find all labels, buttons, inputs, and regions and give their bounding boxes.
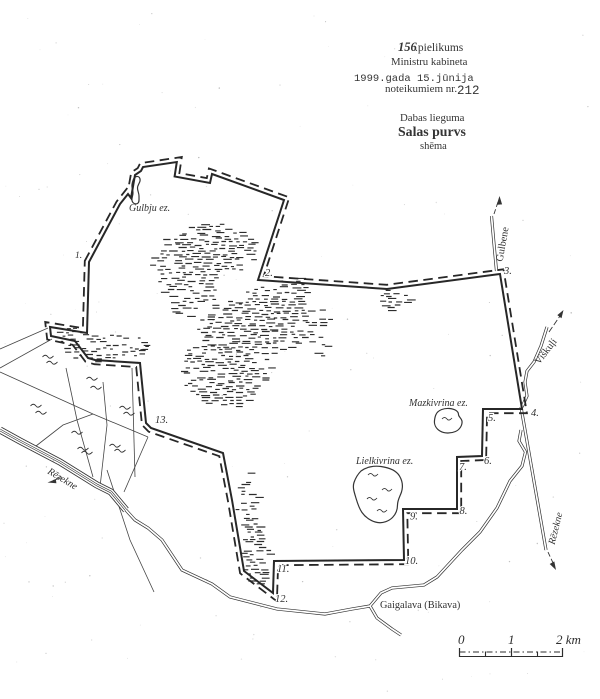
svg-text:6.: 6. (484, 456, 492, 467)
svg-text:212: 212 (457, 84, 480, 98)
svg-text:Mazkivrina ez.: Mazkivrina ez. (408, 398, 468, 409)
svg-text:.pielikums: .pielikums (415, 42, 464, 54)
svg-text:9.: 9. (410, 512, 418, 523)
svg-text:3.: 3. (503, 266, 512, 277)
svg-text:1: 1 (508, 632, 515, 647)
svg-text:11.: 11. (277, 564, 289, 575)
svg-text:noteikumiem nr.: noteikumiem nr. (385, 83, 457, 95)
svg-text:5.: 5. (488, 413, 496, 424)
svg-text:Lielkivrina ez.: Lielkivrina ez. (355, 456, 413, 467)
svg-text:shēma: shēma (420, 141, 447, 152)
svg-text:10.: 10. (405, 556, 418, 567)
svg-text:Gaigalava (Bikava): Gaigalava (Bikava) (380, 600, 460, 611)
svg-text:4.: 4. (531, 408, 539, 419)
svg-text:2.: 2. (265, 268, 273, 279)
svg-text:Ministru kabineta: Ministru kabineta (391, 56, 468, 68)
svg-text:12.: 12. (275, 594, 288, 605)
svg-text:13.: 13. (155, 415, 168, 426)
svg-text:0: 0 (458, 632, 465, 647)
svg-text:7.: 7. (459, 462, 467, 473)
svg-text:8.: 8. (460, 506, 468, 517)
svg-text:2 km: 2 km (556, 632, 581, 647)
svg-text:Gulbju ez.: Gulbju ez. (129, 203, 170, 214)
svg-text:Salas purvs: Salas purvs (398, 124, 466, 139)
svg-text:1.: 1. (75, 251, 82, 261)
svg-text:Dabas lieguma: Dabas lieguma (400, 112, 465, 124)
